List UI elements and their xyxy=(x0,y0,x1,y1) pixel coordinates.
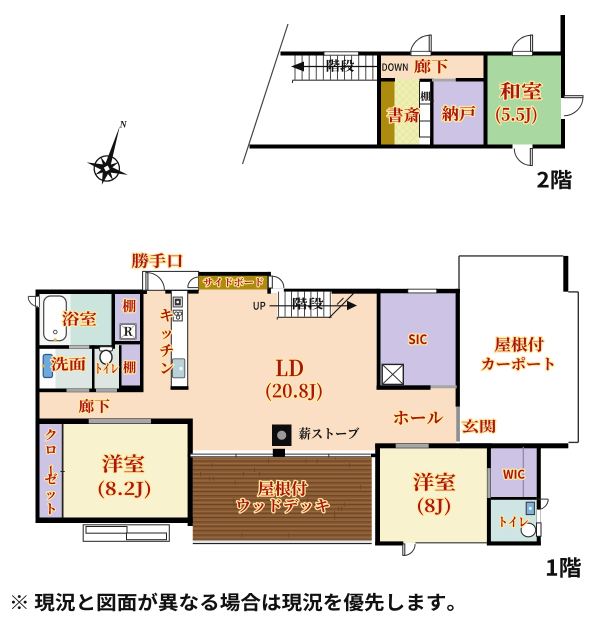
svg-text:N: N xyxy=(119,121,128,131)
